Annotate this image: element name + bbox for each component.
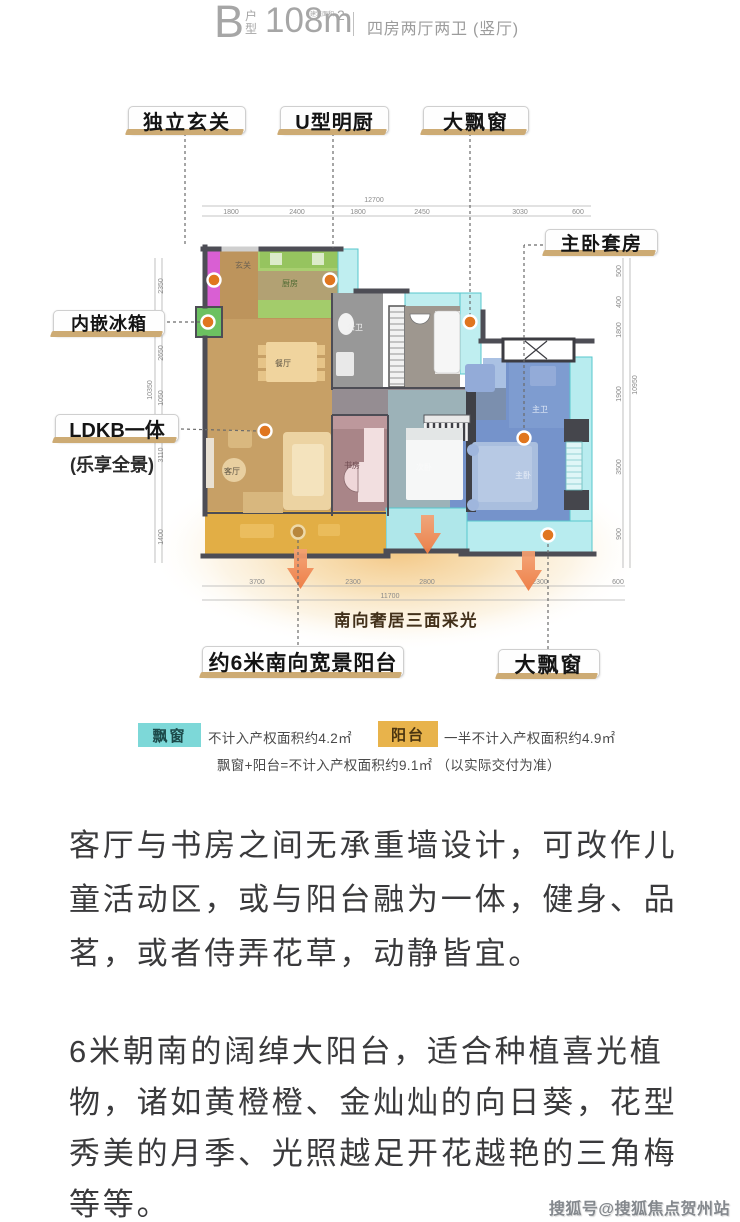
svg-text:主卫: 主卫	[532, 404, 548, 414]
svg-text:10350: 10350	[147, 380, 154, 400]
svg-text:1400: 1400	[158, 529, 165, 545]
svg-text:1800: 1800	[350, 209, 366, 216]
svg-text:玄关: 玄关	[235, 260, 251, 270]
svg-text:1900: 1900	[616, 386, 623, 402]
svg-text:11700: 11700	[381, 593, 400, 600]
svg-text:3500: 3500	[616, 459, 623, 475]
svg-text:客厅: 客厅	[224, 466, 240, 476]
svg-text:书房: 书房	[344, 460, 360, 470]
svg-text:600: 600	[612, 579, 624, 586]
svg-text:公卫: 公卫	[347, 323, 363, 332]
svg-text:餐厅: 餐厅	[275, 359, 291, 368]
svg-text:2300: 2300	[345, 579, 361, 586]
svg-text:次卧: 次卧	[416, 462, 432, 472]
svg-text:1050: 1050	[158, 390, 165, 406]
svg-text:1800: 1800	[223, 209, 239, 216]
svg-text:500: 500	[616, 265, 623, 277]
svg-text:2350: 2350	[158, 278, 165, 294]
svg-text:600: 600	[572, 209, 584, 216]
svg-text:1800: 1800	[616, 322, 623, 338]
svg-text:3030: 3030	[512, 209, 528, 216]
svg-text:厨房: 厨房	[282, 278, 298, 288]
svg-text:南向奢居三面采光: 南向奢居三面采光	[334, 610, 478, 630]
svg-text:3700: 3700	[249, 579, 265, 586]
svg-text:2800: 2800	[419, 579, 435, 586]
svg-text:12700: 12700	[364, 197, 384, 204]
svg-text:400: 400	[616, 296, 623, 308]
svg-text:2450: 2450	[414, 209, 430, 216]
svg-text:10950: 10950	[632, 375, 639, 395]
svg-text:3110: 3110	[158, 447, 165, 462]
svg-text:2400: 2400	[289, 209, 305, 216]
svg-text:2650: 2650	[158, 345, 165, 361]
svg-text:主卧: 主卧	[515, 470, 531, 480]
svg-text:900: 900	[616, 528, 623, 540]
